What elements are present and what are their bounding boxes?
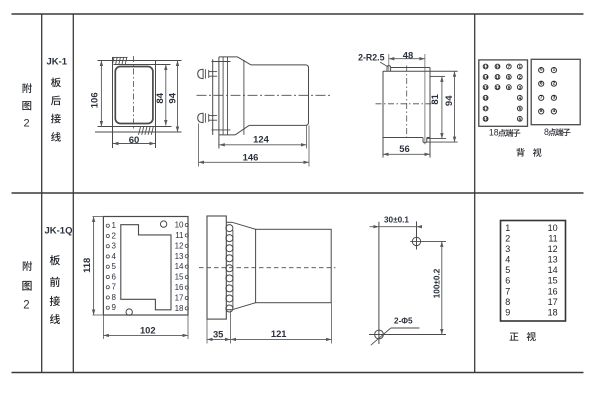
svg-text:17: 17 bbox=[548, 297, 558, 307]
svg-text:94: 94 bbox=[167, 92, 178, 103]
svg-text:15: 15 bbox=[483, 85, 488, 90]
svg-text:2-R2.5: 2-R2.5 bbox=[358, 53, 385, 63]
svg-text:1: 1 bbox=[112, 221, 117, 230]
svg-text:2: 2 bbox=[23, 300, 29, 312]
svg-text:124: 124 bbox=[253, 134, 269, 145]
svg-text:10: 10 bbox=[495, 64, 500, 69]
svg-text:10: 10 bbox=[175, 221, 184, 230]
svg-text:4: 4 bbox=[553, 108, 556, 114]
svg-text:94: 94 bbox=[444, 95, 455, 106]
svg-text:2: 2 bbox=[505, 233, 510, 243]
svg-text:18: 18 bbox=[175, 304, 184, 313]
svg-text:2-Φ5: 2-Φ5 bbox=[394, 317, 413, 326]
svg-text:56: 56 bbox=[399, 143, 409, 154]
svg-text:18: 18 bbox=[483, 116, 488, 121]
svg-text:121: 121 bbox=[271, 328, 287, 339]
svg-text:11: 11 bbox=[495, 75, 500, 80]
svg-text:35: 35 bbox=[213, 328, 223, 339]
svg-text:6: 6 bbox=[112, 272, 117, 281]
svg-text:8: 8 bbox=[505, 297, 510, 307]
svg-text:3: 3 bbox=[112, 242, 117, 251]
svg-text:16: 16 bbox=[483, 95, 488, 100]
svg-text:1: 1 bbox=[553, 67, 556, 73]
svg-text:3: 3 bbox=[553, 94, 556, 100]
svg-text:1: 1 bbox=[505, 223, 510, 233]
svg-text:12: 12 bbox=[495, 85, 500, 90]
svg-text:13: 13 bbox=[175, 252, 184, 261]
svg-text:18: 18 bbox=[489, 128, 499, 138]
svg-text:7: 7 bbox=[505, 286, 510, 296]
svg-text:11: 11 bbox=[548, 233, 557, 243]
svg-text:18: 18 bbox=[548, 307, 558, 317]
svg-text:4: 4 bbox=[505, 255, 510, 265]
svg-text:7: 7 bbox=[540, 94, 543, 100]
svg-text:15: 15 bbox=[548, 276, 558, 286]
svg-text:16: 16 bbox=[548, 286, 558, 296]
svg-text:12: 12 bbox=[548, 244, 558, 254]
svg-text:5: 5 bbox=[505, 265, 510, 275]
svg-text:5: 5 bbox=[540, 67, 543, 73]
svg-text:6: 6 bbox=[540, 80, 543, 86]
svg-text:48: 48 bbox=[403, 50, 413, 61]
svg-text:6: 6 bbox=[505, 276, 510, 286]
svg-text:13: 13 bbox=[483, 64, 488, 69]
svg-text:15: 15 bbox=[175, 273, 184, 282]
svg-text:3: 3 bbox=[505, 244, 510, 254]
svg-text:7: 7 bbox=[112, 283, 117, 292]
svg-text:11: 11 bbox=[175, 231, 184, 240]
svg-text:13: 13 bbox=[548, 255, 558, 265]
svg-text:5: 5 bbox=[112, 262, 117, 271]
svg-text:8: 8 bbox=[540, 108, 543, 114]
svg-text:8: 8 bbox=[112, 293, 117, 302]
svg-text:146: 146 bbox=[243, 151, 259, 162]
svg-text:JK-1: JK-1 bbox=[47, 56, 68, 67]
svg-text:2: 2 bbox=[23, 118, 29, 130]
svg-text:2: 2 bbox=[553, 80, 556, 86]
svg-text:JK-1Q: JK-1Q bbox=[45, 225, 73, 236]
svg-text:8: 8 bbox=[544, 127, 549, 137]
svg-text:118: 118 bbox=[81, 258, 92, 273]
svg-text:106: 106 bbox=[89, 92, 100, 108]
svg-text:100±0.2: 100±0.2 bbox=[433, 268, 442, 298]
svg-text:4: 4 bbox=[112, 252, 117, 261]
svg-text:10: 10 bbox=[548, 223, 558, 233]
svg-text:12: 12 bbox=[175, 241, 184, 250]
svg-text:9: 9 bbox=[112, 303, 117, 312]
svg-text:30±0.1: 30±0.1 bbox=[384, 215, 409, 224]
svg-text:17: 17 bbox=[175, 293, 184, 302]
svg-text:81: 81 bbox=[430, 93, 441, 104]
svg-text:102: 102 bbox=[140, 325, 156, 336]
svg-text:14: 14 bbox=[483, 75, 488, 80]
svg-text:16: 16 bbox=[175, 283, 184, 292]
svg-text:2: 2 bbox=[112, 231, 117, 240]
svg-text:17: 17 bbox=[483, 106, 488, 111]
svg-text:84: 84 bbox=[155, 92, 166, 103]
svg-text:14: 14 bbox=[548, 265, 558, 275]
svg-text:60: 60 bbox=[129, 135, 140, 146]
svg-text:14: 14 bbox=[175, 262, 184, 271]
svg-text:9: 9 bbox=[505, 307, 510, 317]
